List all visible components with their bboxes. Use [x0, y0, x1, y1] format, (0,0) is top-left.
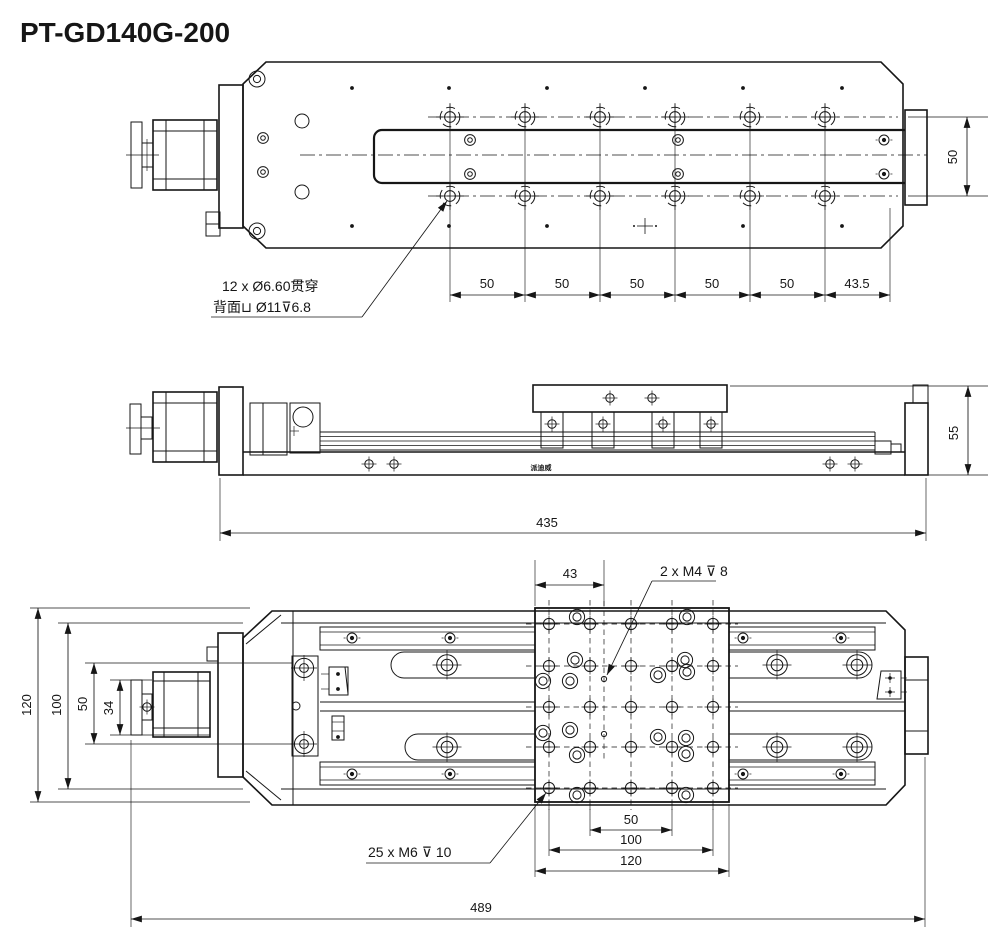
- callout-text: 25 x M6 ⊽ 10: [368, 844, 452, 860]
- dim-label: 120: [620, 853, 642, 868]
- dim-label: 120: [19, 694, 34, 716]
- dim-label: 43: [563, 566, 577, 581]
- callout-line2: 背面⊔ Ø11⊽6.8: [213, 299, 311, 315]
- dim-label: 50: [705, 276, 719, 291]
- dim-label: 55: [946, 426, 961, 440]
- dim-label: 100: [49, 694, 64, 716]
- drawing-canvas: PT-GD140G-200: [0, 0, 1000, 952]
- dim-label: 50: [555, 276, 569, 291]
- dim-label: 50: [630, 276, 644, 291]
- dim-label: 50: [945, 150, 960, 164]
- dim-label: 100: [620, 832, 642, 847]
- dim-label: 489: [470, 900, 492, 915]
- dim-label: 435: [536, 515, 558, 530]
- drawing-title: PT-GD140G-200: [20, 17, 230, 48]
- dim-label: 34: [101, 701, 116, 715]
- engineering-drawing-sheet: PT-GD140G-200: [0, 0, 1000, 952]
- callout-line1: 12 x Ø6.60贯穿: [222, 278, 319, 294]
- callout-text: 2 x M4 ⊽ 8: [660, 563, 728, 579]
- brand-label: 派迪威: [531, 463, 552, 472]
- dim-label: 50: [624, 812, 638, 827]
- dim-label: 50: [75, 697, 90, 711]
- dim-label: 50: [780, 276, 794, 291]
- dim-label: 50: [480, 276, 494, 291]
- dim-label-end: 43.5: [844, 276, 869, 291]
